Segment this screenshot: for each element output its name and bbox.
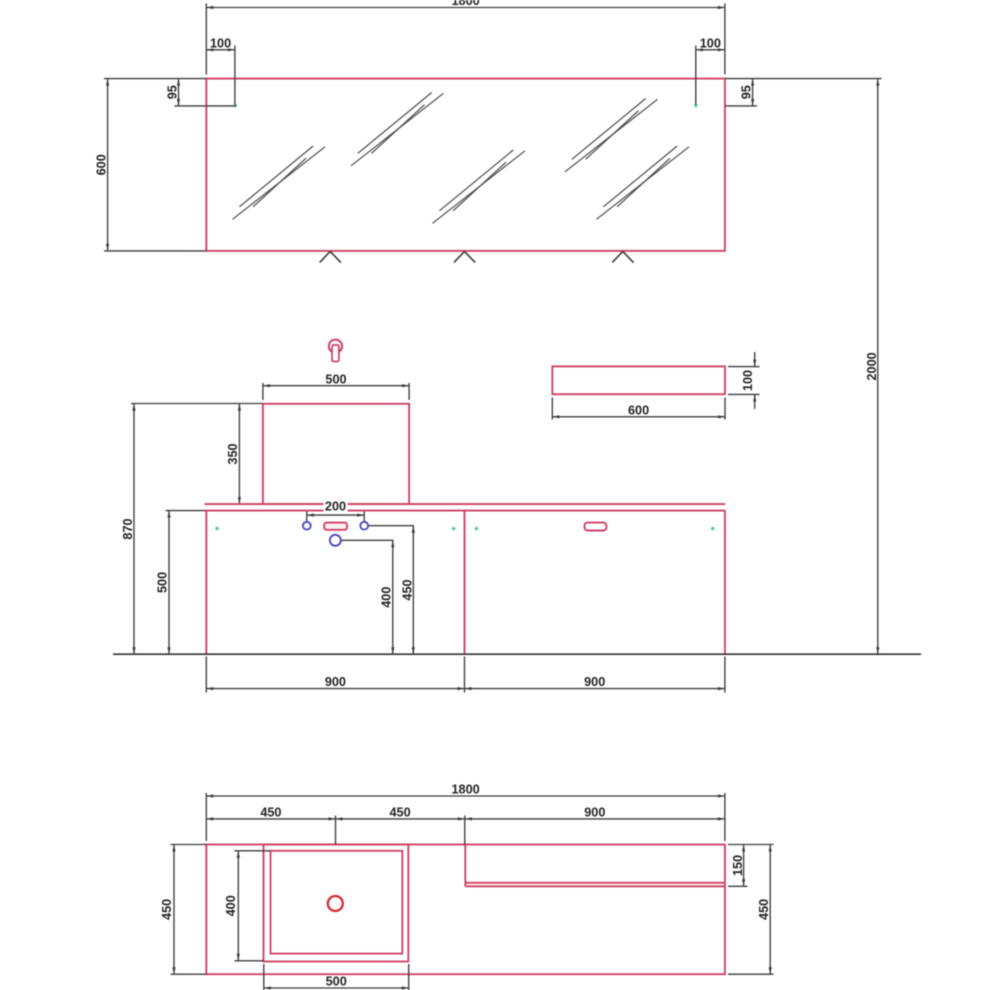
- svg-text:900: 900: [584, 806, 605, 820]
- svg-text:900: 900: [584, 675, 605, 689]
- svg-text:1800: 1800: [451, 783, 479, 797]
- svg-text:450: 450: [160, 899, 174, 920]
- svg-text:870: 870: [121, 518, 135, 539]
- svg-text:450: 450: [757, 899, 771, 920]
- svg-text:600: 600: [628, 403, 649, 417]
- svg-text:350: 350: [226, 443, 240, 464]
- svg-text:1800: 1800: [451, 0, 479, 8]
- svg-text:450: 450: [260, 806, 281, 820]
- svg-text:600: 600: [95, 154, 109, 175]
- svg-text:100: 100: [700, 36, 721, 50]
- svg-text:500: 500: [156, 572, 170, 593]
- svg-text:95: 95: [739, 85, 753, 99]
- svg-text:95: 95: [166, 85, 180, 99]
- svg-text:400: 400: [224, 895, 238, 916]
- svg-text:100: 100: [210, 36, 231, 50]
- svg-text:900: 900: [325, 675, 346, 689]
- svg-text:200: 200: [325, 500, 346, 514]
- svg-text:100: 100: [741, 370, 755, 391]
- svg-text:450: 450: [390, 806, 411, 820]
- svg-text:2000: 2000: [865, 352, 879, 380]
- svg-text:500: 500: [326, 975, 347, 989]
- svg-text:450: 450: [400, 579, 414, 600]
- svg-text:150: 150: [731, 855, 745, 876]
- svg-text:500: 500: [325, 372, 346, 386]
- svg-text:400: 400: [379, 587, 393, 608]
